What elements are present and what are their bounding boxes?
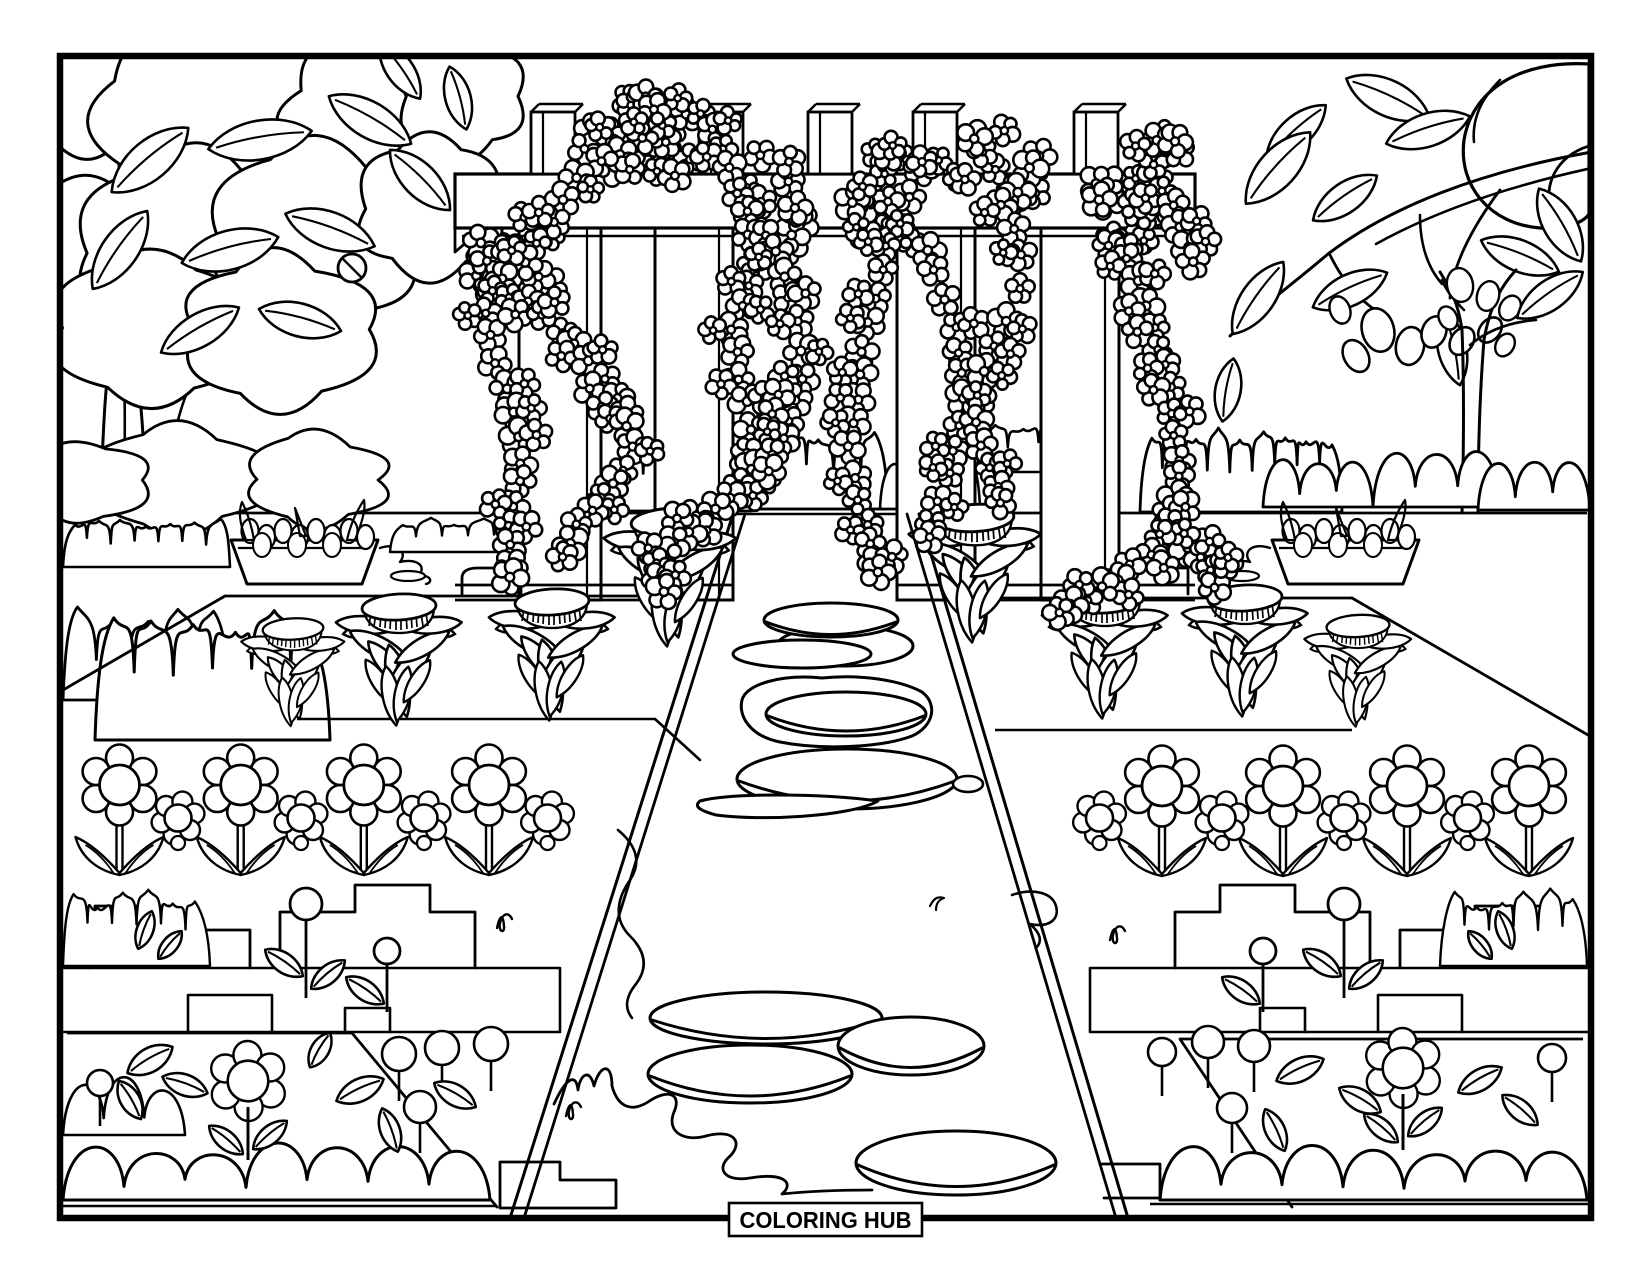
svg-text:COLORING HUB: COLORING HUB	[740, 1207, 912, 1233]
